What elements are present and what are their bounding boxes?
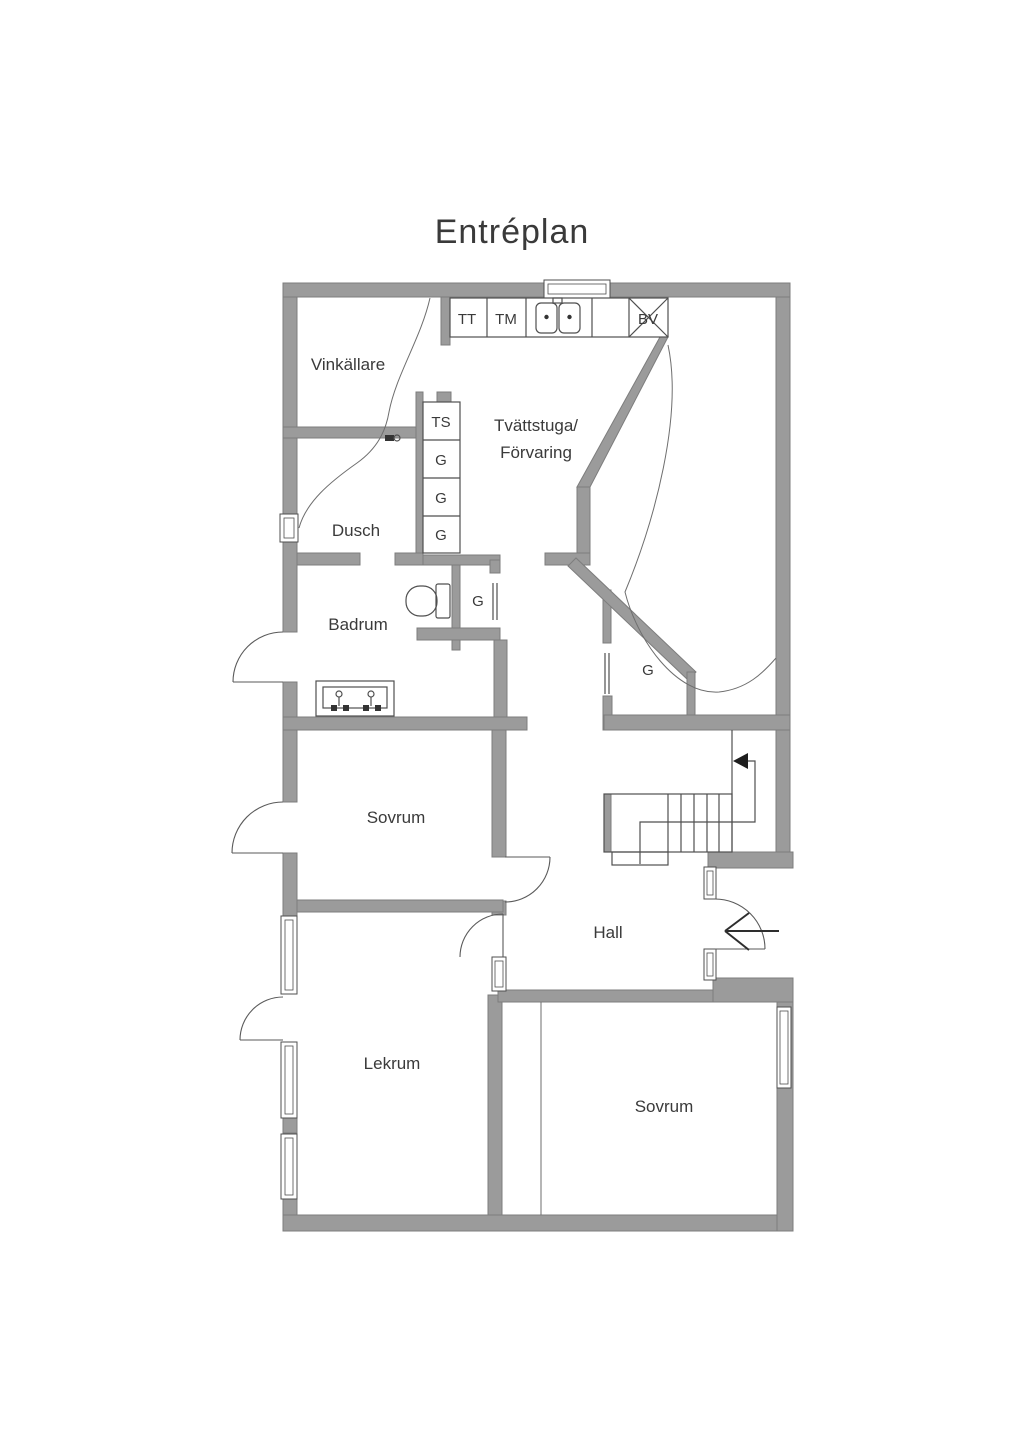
window-lekrum-2 [281, 1042, 297, 1118]
window-entry-sidelight-upper [704, 867, 716, 899]
label-room-tvattstuga-line1: Tvättstuga/ [494, 416, 578, 435]
wall-middle [283, 717, 527, 730]
wall-exterior-left-5 [283, 1118, 297, 1133]
wall-exterior-top [283, 283, 790, 297]
wall-cabinet-return [437, 392, 451, 402]
floor-plan-drawing: EntréplanVinkällareTvättstuga/FörvaringD… [0, 0, 1024, 1448]
wall-diagonal-1 [577, 337, 668, 487]
toilet-icon [406, 584, 450, 618]
wall-exterior-left-4 [283, 853, 297, 917]
wall-diagonal-2-leg [687, 672, 695, 715]
floor-plan-page: EntréplanVinkällareTvättstuga/FörvaringD… [0, 0, 1024, 1448]
label-room-tvattstuga-line2: Förvaring [500, 443, 572, 462]
stair-treads [668, 794, 719, 852]
door-sovrum-upper-hall [505, 857, 550, 902]
wall-exterior-left-1 [283, 297, 297, 517]
wall-lekrum-sovrum-divider [488, 995, 502, 1215]
window-entry-sidelight-lower [704, 949, 716, 980]
door-hall-lekrum [460, 914, 503, 957]
stair-direction-arrow-icon [733, 753, 748, 769]
label-closet-g5: G [642, 662, 654, 679]
door-entry [715, 899, 765, 949]
label-closet-g4: G [472, 593, 484, 610]
label-title: Entréplan [435, 213, 590, 251]
window-lekrum-3 [281, 1134, 297, 1199]
wall-laundry-segment [545, 553, 590, 565]
window-dusch [280, 514, 298, 542]
door-lekrum-exterior [240, 997, 283, 1040]
wall-badrum-east [494, 640, 507, 717]
wall-exterior-left-3 [283, 682, 297, 802]
wall-exterior-bottom [283, 1215, 793, 1231]
wall-closet-return-top [490, 560, 500, 573]
wall-closet-top [423, 555, 500, 565]
label-room-lekrum: Lekrum [364, 1054, 421, 1073]
vanity-sink-icon [316, 681, 394, 716]
label-fixture-bv: BV [638, 311, 658, 328]
closet-door-line-2 [605, 653, 609, 694]
wall-dusch-bottom-1 [297, 553, 360, 565]
wall-stair-bottom [708, 852, 793, 868]
door-badrum-exterior [233, 632, 283, 682]
wall-dusch-bottom-2 [395, 553, 423, 565]
window-sovrum-lower [777, 1007, 791, 1088]
wall-exterior-right-1 [776, 297, 790, 868]
staircase [604, 730, 755, 865]
wall-exterior-left-2 [283, 542, 297, 632]
wall-sovrum-upper-right [492, 730, 506, 857]
label-room-sovrum-lower: Sovrum [635, 1097, 694, 1116]
wall-vinkallare-bottom [283, 427, 417, 438]
wall-diagonal-2 [568, 558, 696, 680]
door-sovrum-upper-exterior [232, 802, 283, 853]
wall-diagonal-1-leg [577, 487, 590, 553]
wall-kitchen-divider [441, 297, 450, 345]
stair-walk-line [640, 761, 755, 864]
label-fixture-tt: TT [458, 311, 476, 328]
label-cabinet-g2: G [435, 490, 447, 507]
laundry-counter [450, 298, 668, 337]
label-cabinet-g1: G [435, 452, 447, 469]
wall-stair-top [604, 715, 790, 730]
wall-sovrum-upper-bottom [297, 900, 503, 912]
label-room-badrum: Badrum [328, 615, 388, 634]
wall-entry-recess [713, 978, 793, 1002]
label-room-dusch: Dusch [332, 521, 380, 540]
wall-cabinet-left [416, 392, 423, 553]
wall-stair-left [604, 794, 611, 852]
label-room-sovrum-upper: Sovrum [367, 808, 426, 827]
closet-door-line-1 [493, 583, 497, 620]
label-cabinet-ts: TS [431, 414, 450, 431]
bathroom-fixtures [316, 435, 609, 1215]
window-hall-glass-panel [492, 957, 506, 991]
ceiling-line-left [299, 298, 430, 528]
sink-icon [536, 298, 580, 333]
label-fixture-tm: TM [495, 311, 517, 328]
window-kitchen [544, 280, 610, 298]
label-room-vinkallare: Vinkällare [311, 355, 385, 374]
window-lekrum-1 [281, 916, 297, 994]
entry-direction-arrow-icon [725, 913, 779, 950]
wall-closet-bottom [417, 628, 500, 640]
label-room-hall: Hall [593, 923, 622, 942]
wall-sovrum-lower-top [498, 990, 713, 1002]
label-cabinet-g3: G [435, 527, 447, 544]
